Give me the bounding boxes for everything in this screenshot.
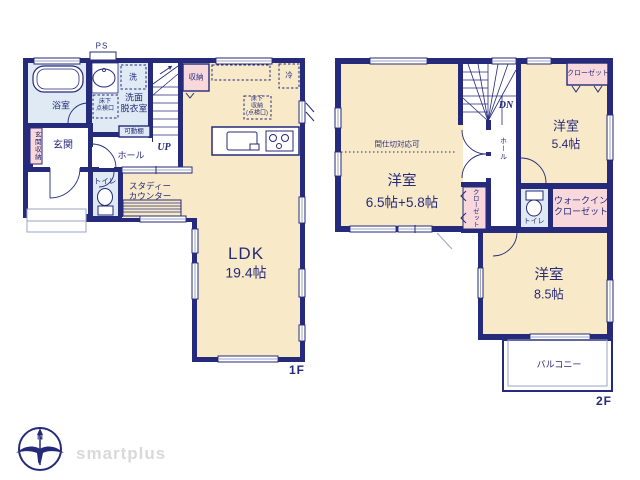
floor2-tag: 2F: [596, 394, 612, 408]
compass-north-label: N: [37, 432, 43, 441]
wall: [118, 167, 123, 217]
wall: [28, 167, 50, 172]
fridge-label: 冷: [285, 72, 293, 81]
bedroom-small-size-label: 5.4帖: [552, 137, 581, 151]
closet-mid-label: クローゼット: [471, 189, 478, 228]
toilet1-icon: [98, 189, 114, 216]
walk-in-closet-label: ウォークイン クローゼット: [554, 195, 608, 216]
wall: [516, 58, 521, 156]
ldk-name-label: LDK: [228, 244, 264, 264]
entrance-storage-label: 玄関収納: [33, 131, 40, 161]
wall: [86, 58, 92, 128]
kitchen-counter-icon: [212, 127, 299, 155]
bedroom-main-size-label: 6.5帖+5.8帖: [366, 195, 438, 211]
toilet2-icon: [526, 191, 543, 216]
closet-small-label: クローゼット: [567, 70, 609, 78]
stairs-down-label: DN: [499, 100, 513, 112]
wall: [93, 167, 99, 172]
floor1-plan: [23, 52, 314, 362]
balcony-label: バルコニー: [537, 360, 582, 371]
hall1-label: ホール: [117, 151, 144, 162]
storage-label: 収納: [189, 74, 204, 83]
ps-shaft: [90, 52, 116, 60]
wall: [80, 167, 94, 172]
study-counter-label: スタディー カウンター: [129, 181, 172, 201]
ldk-size-label: 19.4帖: [225, 265, 266, 282]
bedroom-south-size-label: 8.5帖: [534, 288, 564, 303]
ps-label: PS: [96, 41, 109, 50]
bathtub-icon: [33, 66, 83, 92]
floor1-tag: 1F: [289, 363, 305, 377]
wall: [461, 182, 491, 187]
laundry-label: 洗: [129, 72, 137, 81]
wall: [486, 152, 491, 156]
wall: [514, 227, 613, 233]
washroom-label: 洗面 脱衣室: [120, 92, 147, 113]
inspection-hatch-label: 床下 点検口: [96, 99, 114, 113]
brand-logo: smartplus: [76, 444, 166, 464]
wall: [458, 58, 463, 125]
stairs-up-label: UP: [157, 142, 170, 154]
toilet2-label: トイレ: [524, 218, 545, 226]
floorplan-geometry: [0, 0, 640, 480]
wall: [516, 183, 613, 189]
porch-steps: [27, 209, 86, 232]
wall: [548, 189, 553, 228]
underfloor-storage-label: 床下 収納 (点検口): [246, 96, 268, 117]
partition-note-label: 間仕切対応可: [375, 141, 420, 150]
wall: [486, 120, 491, 130]
entrance-label: 玄関: [53, 140, 73, 152]
toilet1-label: トイレ: [94, 178, 117, 187]
bathroom-label: 浴室: [52, 101, 70, 112]
bedroom-south-name-label: 洋室: [535, 267, 564, 284]
bedroom-main-name-label: 洋室: [388, 173, 417, 190]
sink-icon: [92, 63, 118, 93]
movable-shelf-label: 可動棚: [124, 128, 144, 136]
bedroom-small-name-label: 洋室: [553, 118, 579, 133]
floorplan-canvas: PS 浴室 洗 洗面 脱衣室 床下 点検口 可動棚 玄関収納 玄関 ホール UP…: [0, 0, 640, 480]
hall2-label: ホール: [500, 137, 507, 161]
wall: [23, 123, 93, 128]
wall: [178, 58, 183, 150]
